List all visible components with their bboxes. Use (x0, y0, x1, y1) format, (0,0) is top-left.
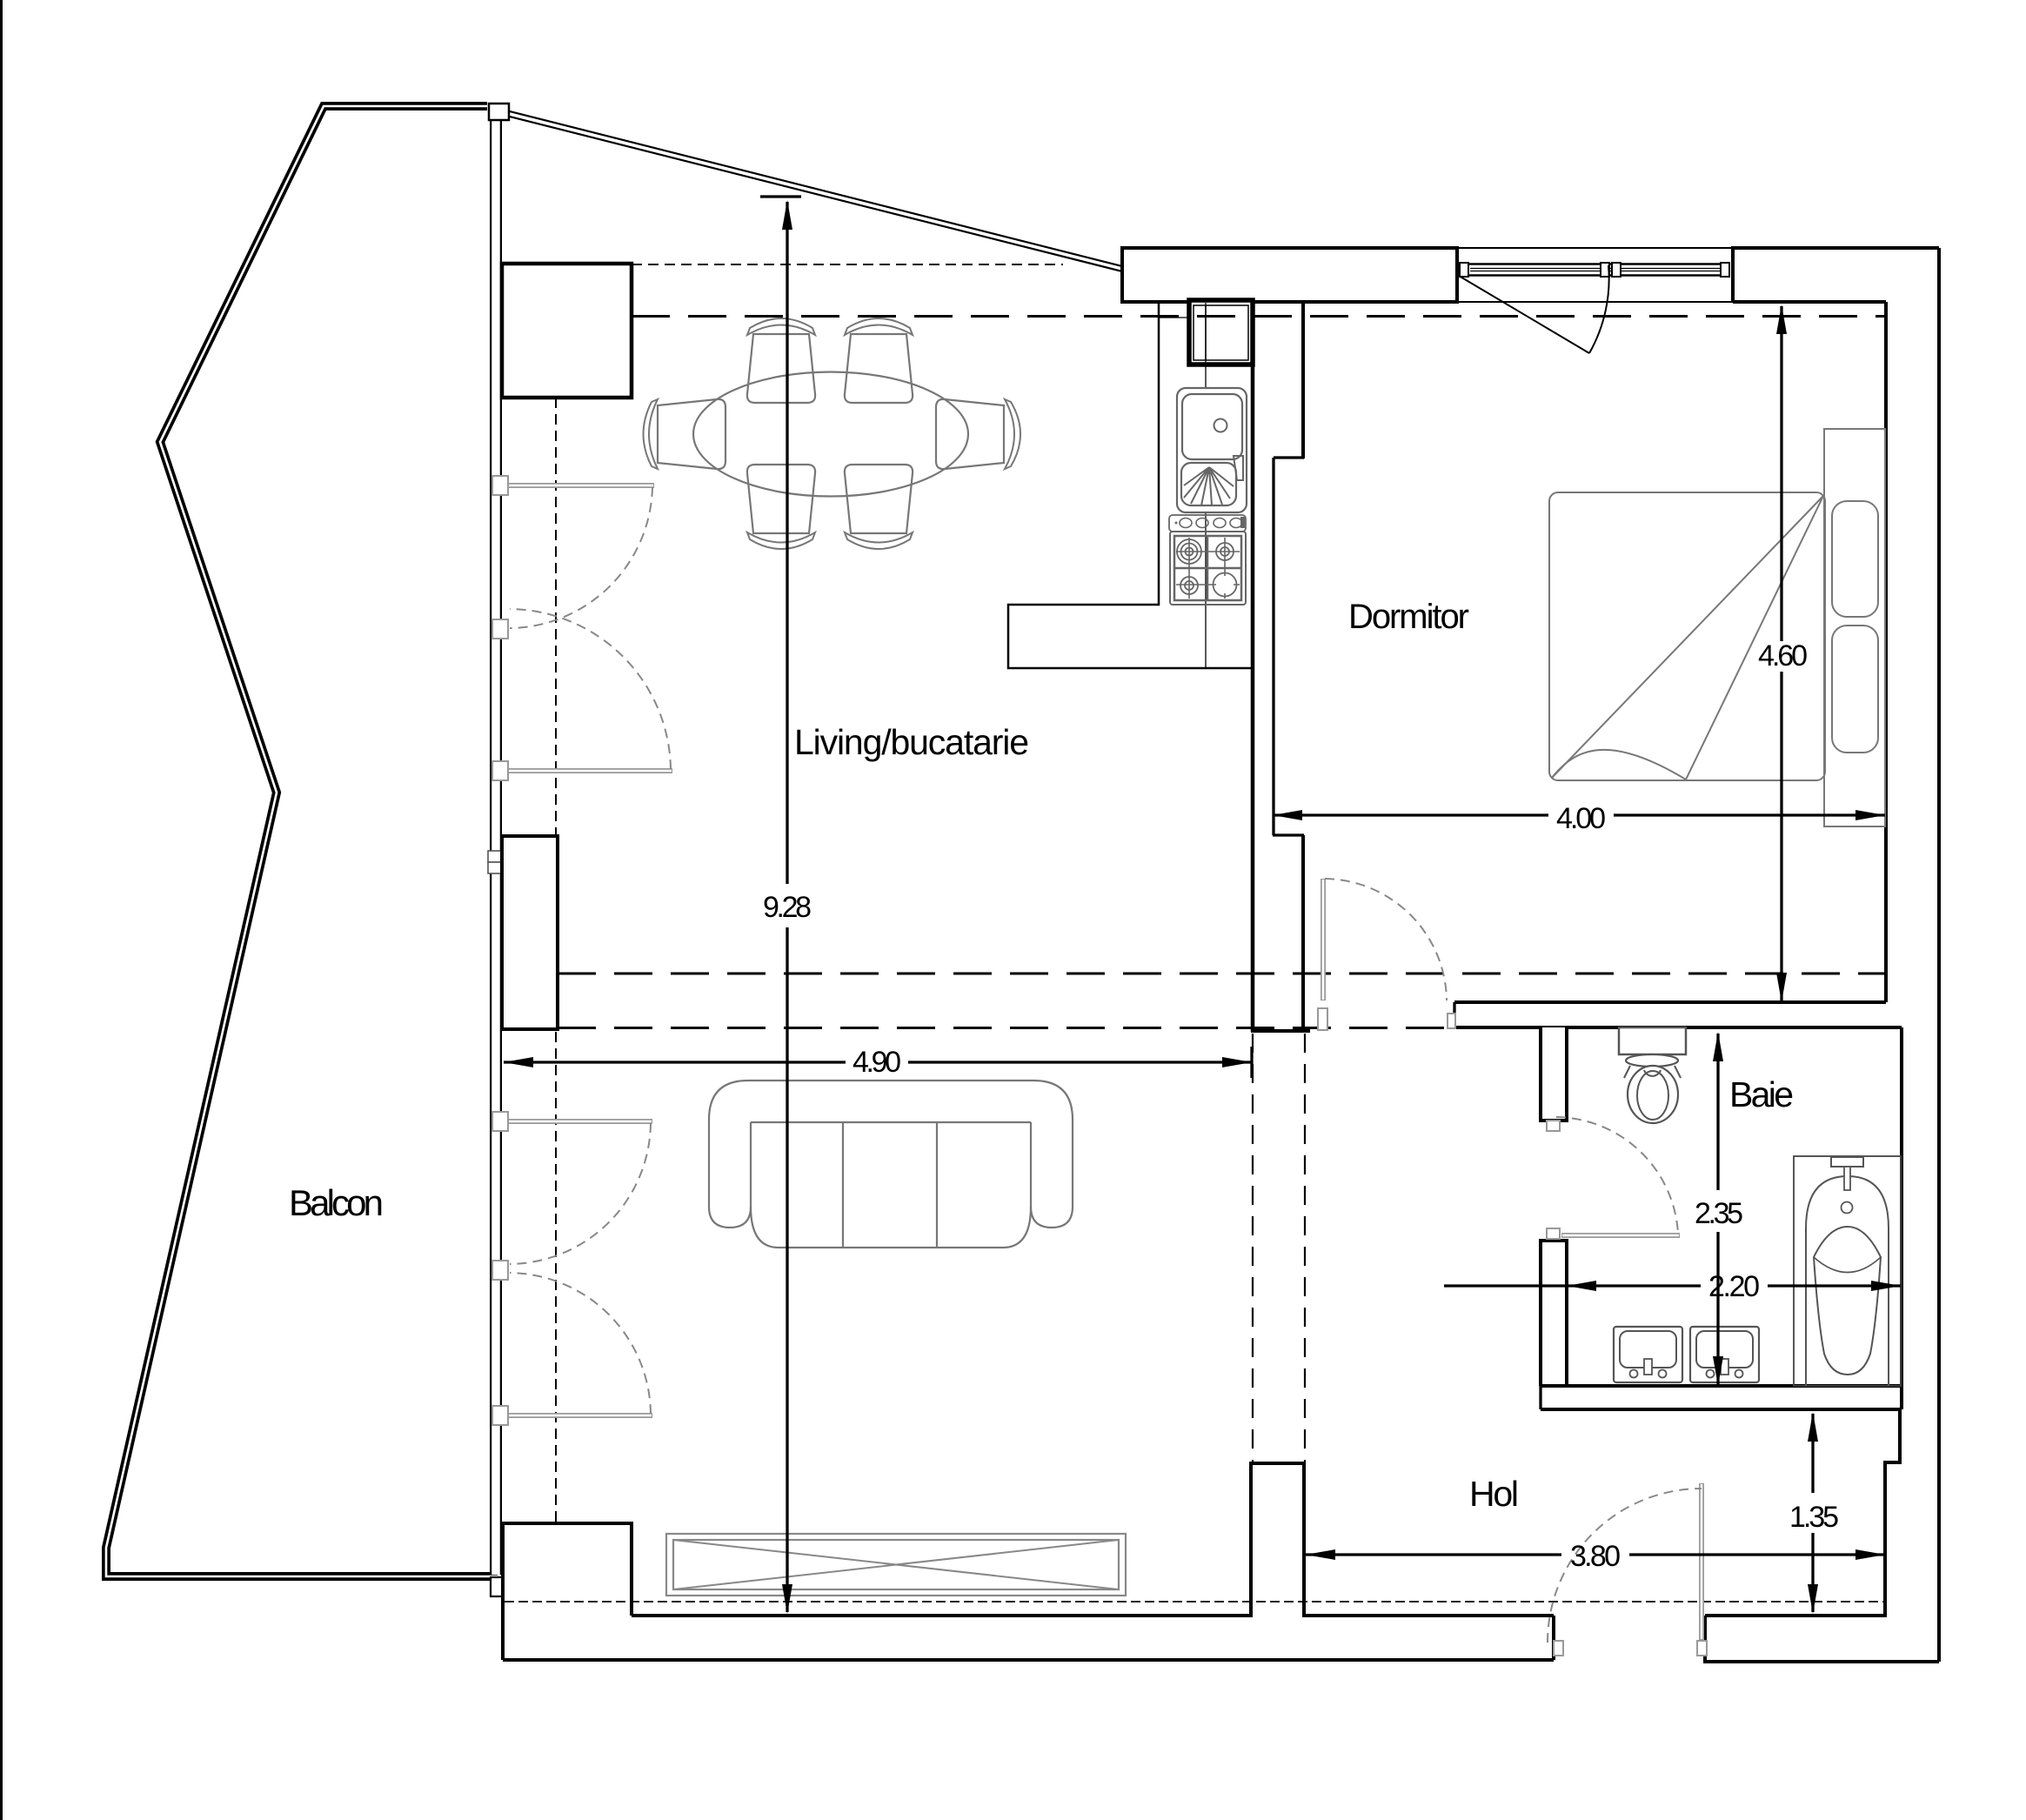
svg-text:9.28: 9.28 (763, 891, 812, 924)
svg-text:Balcon: Balcon (289, 1182, 384, 1223)
svg-text:Dormitor: Dormitor (1348, 598, 1469, 636)
svg-text:1.35: 1.35 (1789, 1501, 1839, 1534)
svg-text:2.20: 2.20 (1708, 1270, 1760, 1303)
svg-text:4.60: 4.60 (1758, 639, 1808, 672)
svg-text:Hol: Hol (1469, 1474, 1519, 1514)
svg-text:3.80: 3.80 (1570, 1540, 1621, 1573)
svg-text:2.35: 2.35 (1695, 1197, 1743, 1230)
svg-text:Baie: Baie (1729, 1074, 1794, 1114)
svg-text:4.90: 4.90 (853, 1046, 901, 1079)
svg-text:Living/bucatarie: Living/bucatarie (794, 722, 1029, 762)
svg-text:4.00: 4.00 (1556, 802, 1606, 835)
